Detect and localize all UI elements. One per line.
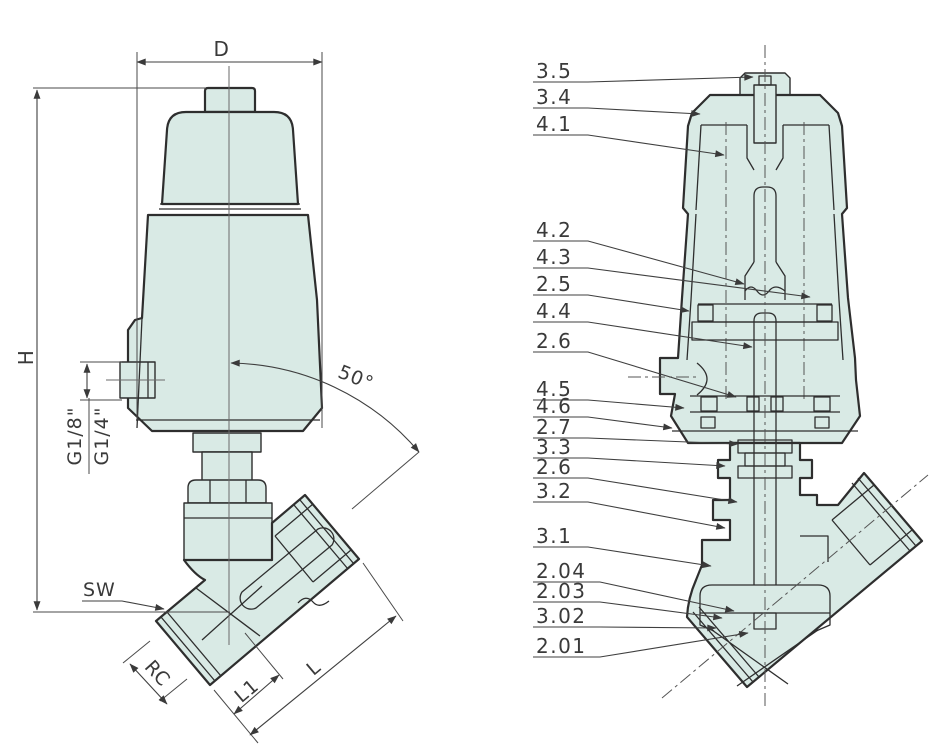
callout-4-2: 4.2 <box>536 218 572 242</box>
actuator-collar <box>193 433 261 452</box>
valve-outline <box>120 88 359 685</box>
drawing-canvas: D H G1/8" G1/4" 50° SW <box>0 0 941 751</box>
callout-2-6-upper: 2.6 <box>536 329 572 353</box>
bonnet <box>184 503 272 560</box>
callout-3-02: 3.02 <box>536 604 587 628</box>
callout-3-4: 3.4 <box>536 85 572 109</box>
callout-4-3: 4.3 <box>536 245 572 269</box>
callout-3-2: 3.2 <box>536 479 572 503</box>
actuator-lower-body <box>128 215 322 431</box>
section-outline <box>660 73 922 687</box>
callout-3-5: 3.5 <box>536 59 572 83</box>
callout-2-6-lower: 2.6 <box>536 455 572 479</box>
valve-stem-neck <box>202 452 252 482</box>
pilot-port-size-top: G1/8" <box>64 406 86 465</box>
length-l1-label: L1 <box>230 675 263 708</box>
actuator-top-cap <box>205 88 255 112</box>
section-view: 3.5 3.4 4.1 4.2 4.3 2.5 4.4 2.6 4.5 4.6 … <box>533 45 928 710</box>
callout-4-1: 4.1 <box>536 112 572 136</box>
dimension-sw: SW <box>82 579 164 609</box>
hex-nut <box>188 480 266 503</box>
dimension-rc: RC <box>123 641 187 704</box>
dim-label-h: H <box>14 349 38 366</box>
pilot-port-size-bottom: G1/4" <box>91 406 113 465</box>
dimensional-view: D H G1/8" G1/4" 50° SW <box>14 37 419 743</box>
dim-label-d: D <box>214 37 231 61</box>
bonnet-and-body-section <box>687 443 922 687</box>
callout-2-5: 2.5 <box>536 272 572 296</box>
wrench-size-label: SW <box>83 579 116 601</box>
callout-2-01: 2.01 <box>536 634 587 658</box>
callout-2-03: 2.03 <box>536 579 587 603</box>
callout-4-4: 4.4 <box>536 299 572 323</box>
callout-3-1: 3.1 <box>536 524 572 548</box>
thread-size-label: RC <box>140 656 175 691</box>
actuator-upper-cap <box>162 112 298 204</box>
valve-technical-drawing: D H G1/8" G1/4" 50° SW <box>0 0 941 751</box>
